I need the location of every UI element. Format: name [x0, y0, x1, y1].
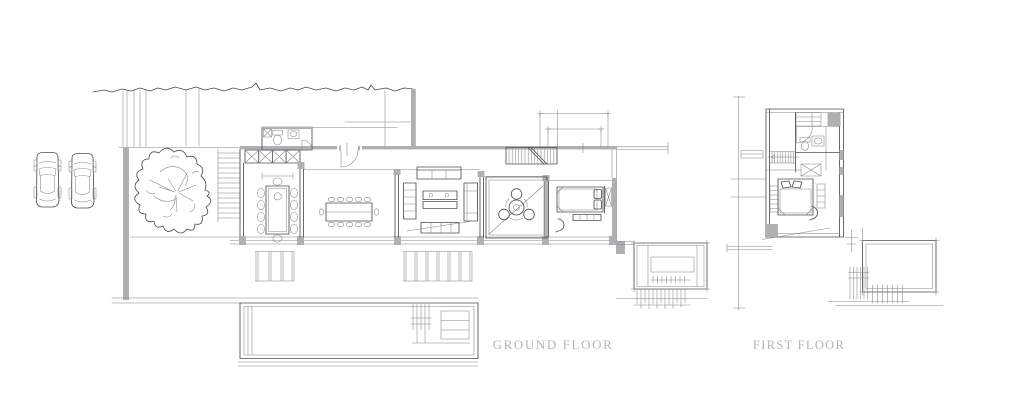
first-floor-label: FIRST FLOOR [753, 338, 845, 352]
garden-terrace [616, 240, 710, 309]
south-steps [255, 252, 472, 282]
entry-stairs [218, 149, 240, 222]
first-floor-walls [762, 109, 844, 240]
courtyard-patio [486, 177, 547, 238]
first-floor-plan: FIRST FLOOR [727, 96, 943, 352]
living-room-furniture [404, 167, 478, 233]
car-1 [34, 153, 61, 208]
floor-plan-drawing: GROUND FLOOR [0, 0, 1024, 402]
parked-cars [34, 153, 96, 209]
driveway-lines [119, 88, 242, 148]
bedroom-bed [556, 186, 612, 232]
ff-terrace [828, 228, 943, 306]
building-shell [130, 142, 668, 245]
floor-plan-sheet: GROUND FLOOR [0, 0, 1024, 402]
tree [135, 148, 211, 233]
ground-floor-plan: GROUND FLOOR [34, 83, 710, 366]
car-2 [69, 154, 96, 209]
site-boundary [93, 83, 413, 92]
ground-floor-label: GROUND FLOOR [493, 337, 614, 352]
swimming-pool [238, 303, 478, 366]
ff-dimension-marks [845, 230, 858, 252]
kitchen-island [319, 197, 379, 227]
site-left-wall [123, 147, 129, 300]
dining-table [257, 173, 297, 242]
closet-row [245, 150, 300, 163]
entry-door [337, 145, 362, 167]
sheet-edge-lines [727, 96, 772, 310]
staircase [506, 148, 557, 165]
ground-line [112, 298, 478, 303]
ff-wardrobe-box [801, 164, 821, 176]
ff-bedroom-bed [770, 179, 825, 220]
